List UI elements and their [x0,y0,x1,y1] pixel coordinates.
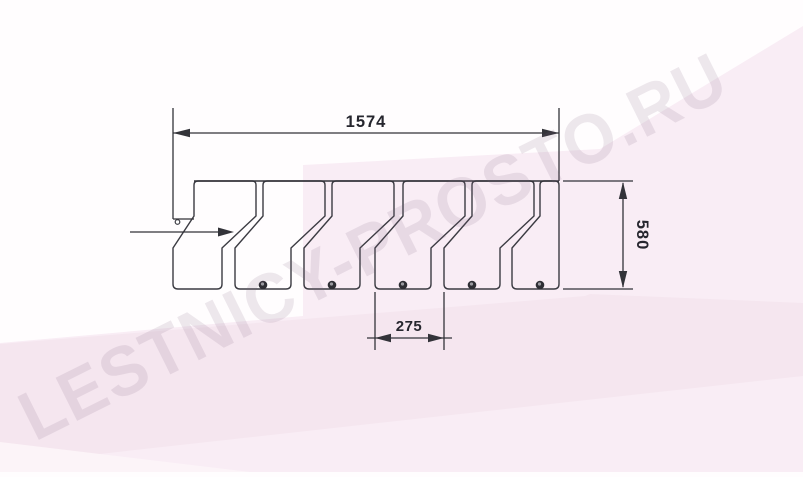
bolt-highlight [538,282,541,285]
bolt-highlight [401,282,404,285]
dimension-pitch-label: 275 [396,318,423,335]
arrowhead-left-icon [173,129,190,137]
direction-arrow-icon [218,228,234,237]
bolt-highlight [470,282,473,285]
technical-drawing-svg: 1574 580 275 LESTNICY-PROSTO.RU [0,0,803,472]
staircase-drawing-canvas: 1574 580 275 LESTNICY-PROSTO.RU [0,0,803,472]
dimension-depth-label: 580 [633,220,651,251]
dimension-total-length-label: 1574 [346,113,387,131]
pivot-hole-icon [175,220,180,225]
